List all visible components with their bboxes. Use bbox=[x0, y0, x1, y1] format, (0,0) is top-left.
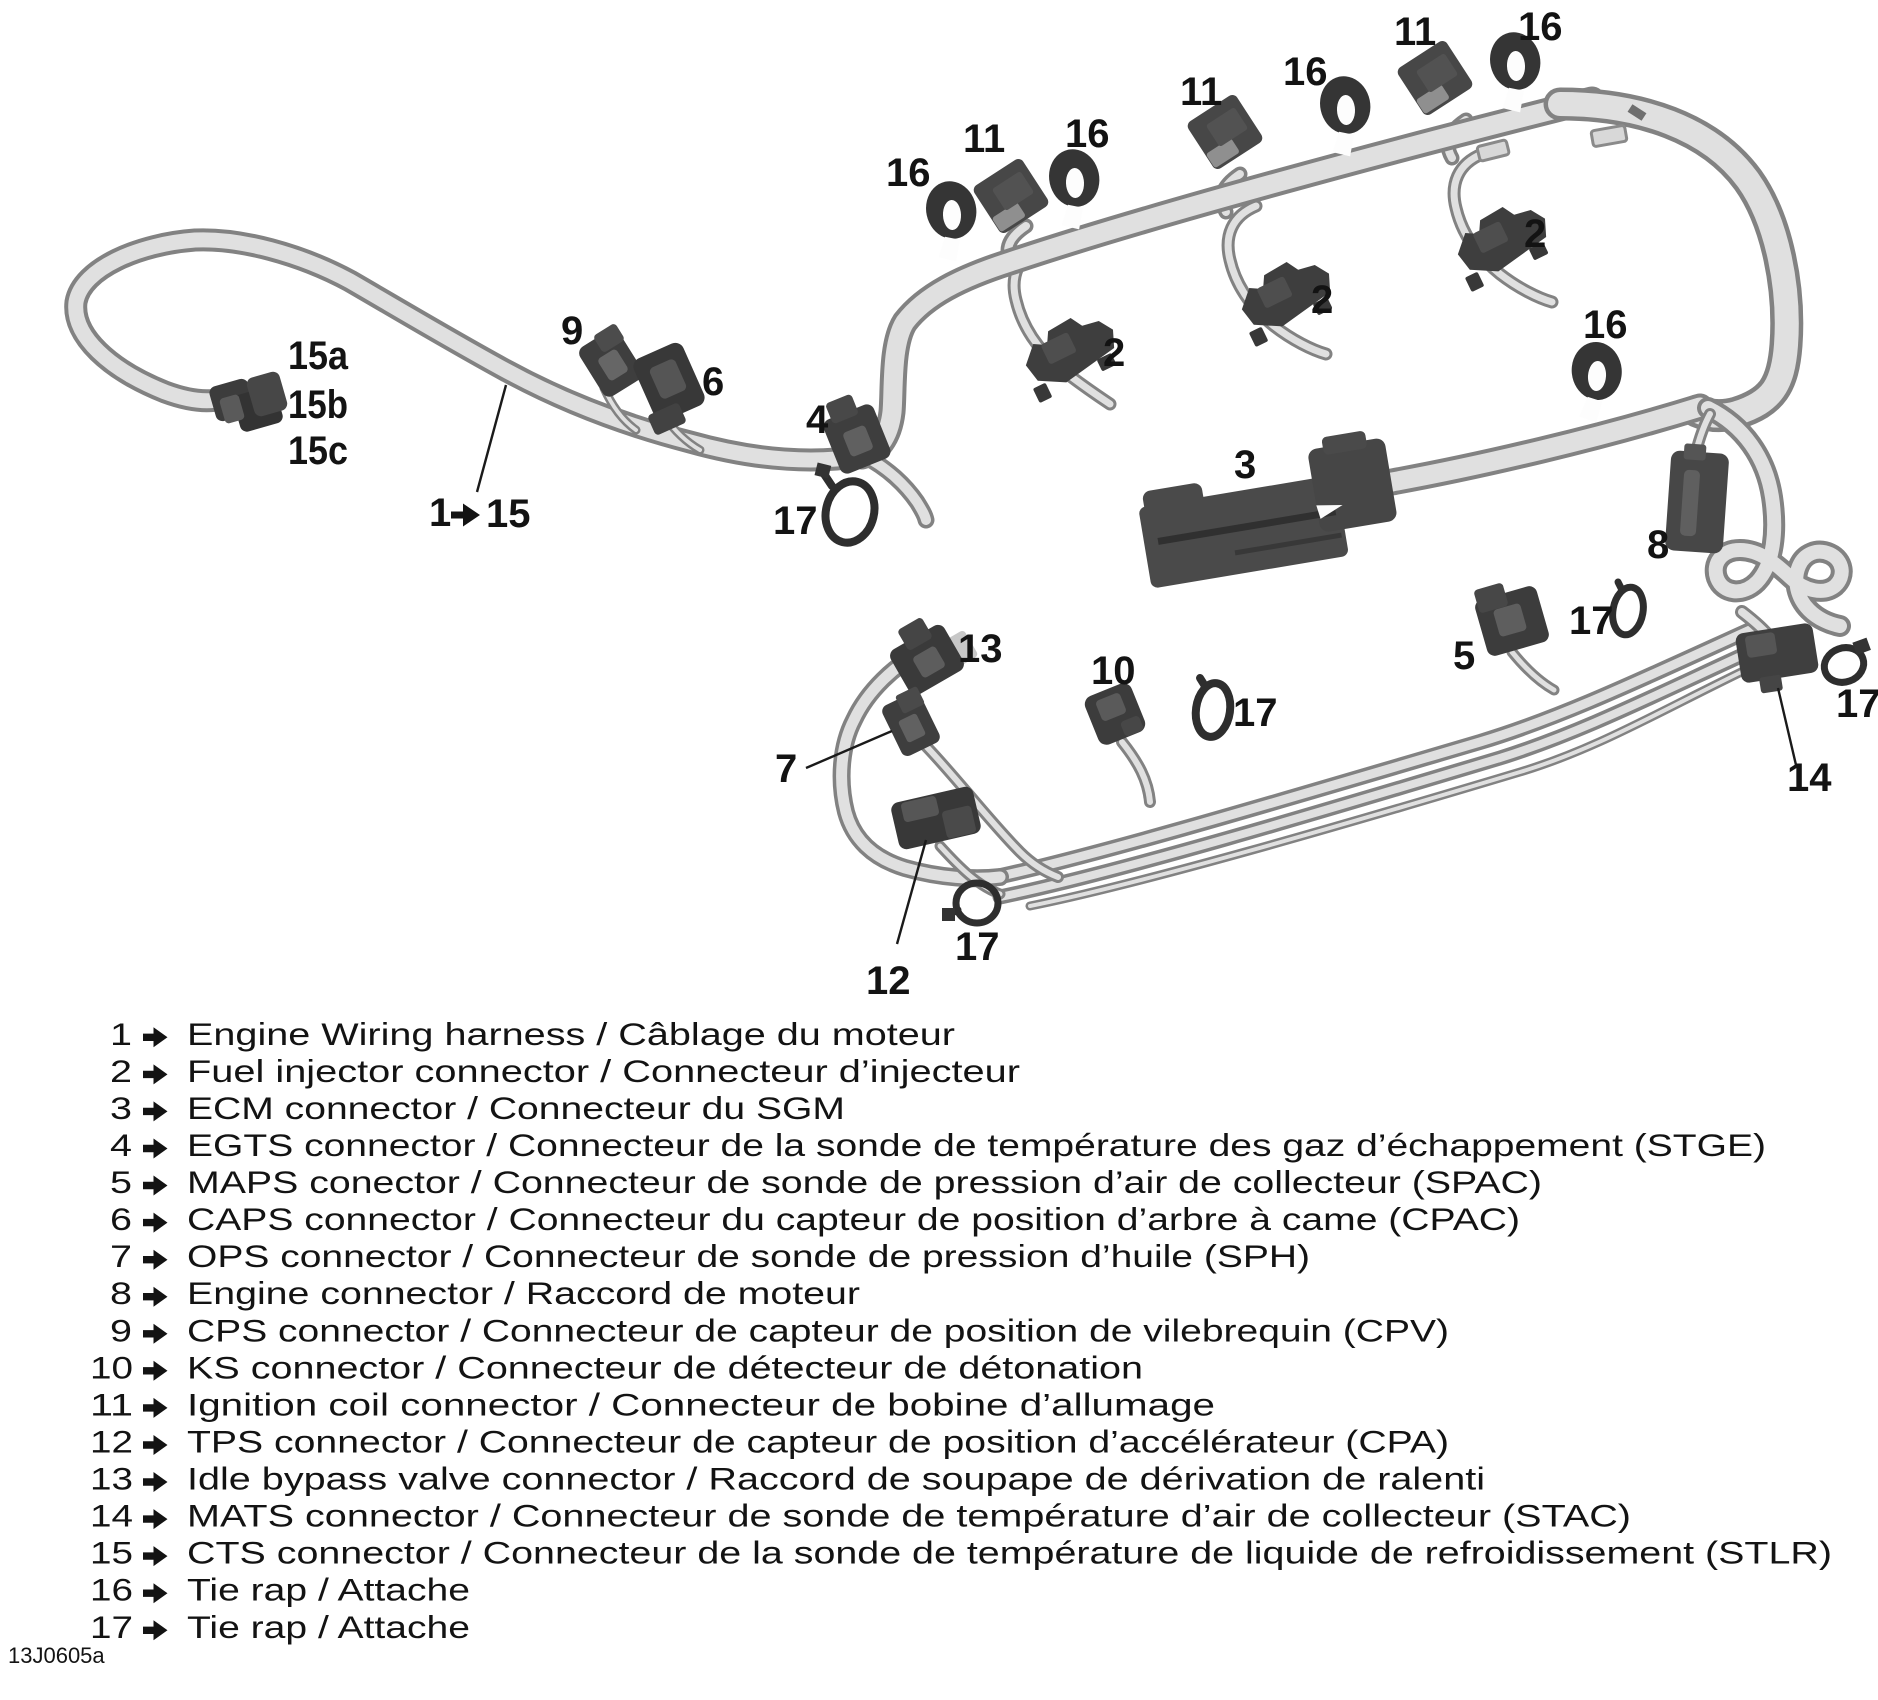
svg-text:5: 5 bbox=[110, 1164, 132, 1200]
svg-text:OPS connector / Connecteur de: OPS connector / Connecteur de sonde de p… bbox=[187, 1238, 1310, 1274]
svg-text:13: 13 bbox=[90, 1461, 133, 1497]
svg-text:15: 15 bbox=[486, 492, 531, 536]
svg-text:16: 16 bbox=[90, 1572, 133, 1608]
svg-text:11: 11 bbox=[90, 1386, 133, 1422]
svg-text:Tie rap / Attache: Tie rap / Attache bbox=[187, 1572, 470, 1608]
svg-text:16: 16 bbox=[1583, 303, 1628, 347]
svg-text:TPS connector / Connecteur de: TPS connector / Connecteur de capteur de… bbox=[187, 1424, 1449, 1460]
svg-text:10: 10 bbox=[1091, 649, 1136, 693]
svg-text:15b: 15b bbox=[288, 383, 348, 427]
svg-text:17: 17 bbox=[90, 1609, 133, 1645]
svg-text:CPS connector / Connecteur de: CPS connector / Connecteur de capteur de… bbox=[187, 1312, 1449, 1348]
svg-text:MATS connector / Connecteur de: MATS connector / Connecteur de sonde de … bbox=[187, 1498, 1631, 1534]
svg-text:16: 16 bbox=[1065, 112, 1110, 156]
svg-text:3: 3 bbox=[1234, 443, 1256, 487]
svg-text:8: 8 bbox=[110, 1275, 132, 1311]
svg-text:15: 15 bbox=[90, 1535, 133, 1571]
svg-text:11: 11 bbox=[963, 117, 1005, 161]
svg-text:Fuel injector connector / Conn: Fuel injector connector / Connecteur d’i… bbox=[187, 1053, 1020, 1089]
svg-text:11: 11 bbox=[1394, 10, 1436, 54]
svg-text:17: 17 bbox=[773, 499, 818, 543]
svg-text:16: 16 bbox=[1518, 5, 1563, 49]
svg-text:Engine Wiring harness / Câblag: Engine Wiring harness / Câblage du moteu… bbox=[187, 1016, 955, 1052]
svg-text:1: 1 bbox=[110, 1016, 132, 1052]
svg-text:16: 16 bbox=[886, 151, 931, 195]
svg-text:17: 17 bbox=[1836, 682, 1878, 726]
svg-text:14: 14 bbox=[90, 1498, 133, 1534]
svg-text:6: 6 bbox=[702, 360, 724, 404]
svg-text:4: 4 bbox=[806, 398, 829, 442]
svg-text:2: 2 bbox=[1103, 331, 1125, 375]
svg-text:17: 17 bbox=[955, 925, 1000, 969]
svg-text:1: 1 bbox=[429, 491, 451, 535]
svg-text:2: 2 bbox=[110, 1053, 132, 1089]
svg-text:7: 7 bbox=[110, 1238, 132, 1274]
svg-text:Tie rap / Attache: Tie rap / Attache bbox=[187, 1609, 470, 1645]
svg-text:9: 9 bbox=[561, 309, 583, 353]
svg-text:EGTS connector / Connecteur de: EGTS connector / Connecteur de la sonde … bbox=[187, 1127, 1766, 1163]
svg-text:12: 12 bbox=[90, 1424, 133, 1460]
svg-text:14: 14 bbox=[1787, 756, 1832, 800]
svg-text:9: 9 bbox=[110, 1312, 132, 1348]
svg-text:17: 17 bbox=[1569, 599, 1614, 643]
svg-text:KS connector / Connecteur de d: KS connector / Connecteur de détecteur d… bbox=[187, 1349, 1143, 1385]
svg-text:13J0605a: 13J0605a bbox=[8, 1643, 105, 1668]
svg-text:7: 7 bbox=[775, 747, 797, 791]
svg-text:MAPS conector / Connecteur de: MAPS conector / Connecteur de sonde de p… bbox=[187, 1164, 1542, 1200]
svg-text:CTS connector / Connecteur de: CTS connector / Connecteur de la sonde d… bbox=[187, 1535, 1832, 1571]
svg-text:Idle bypass valve connector /: Idle bypass valve connector / Raccord de… bbox=[187, 1461, 1485, 1497]
svg-text:11: 11 bbox=[1180, 70, 1222, 114]
svg-text:6: 6 bbox=[110, 1201, 132, 1237]
svg-text:4: 4 bbox=[110, 1127, 132, 1163]
svg-text:12: 12 bbox=[866, 959, 911, 1003]
svg-text:10: 10 bbox=[90, 1349, 133, 1385]
svg-text:13: 13 bbox=[958, 627, 1003, 671]
svg-text:Ignition coil connector / Conn: Ignition coil connector / Connecteur de … bbox=[187, 1386, 1215, 1422]
svg-text:ECM connector / Connecteur du: ECM connector / Connecteur du SGM bbox=[187, 1090, 845, 1126]
svg-text:2: 2 bbox=[1524, 212, 1546, 256]
svg-text:Engine connector / Raccord de: Engine connector / Raccord de moteur bbox=[187, 1275, 860, 1311]
svg-text:16: 16 bbox=[1283, 50, 1328, 94]
svg-text:5: 5 bbox=[1453, 634, 1475, 678]
svg-text:15c: 15c bbox=[288, 429, 348, 473]
svg-text:3: 3 bbox=[110, 1090, 132, 1126]
svg-text:2: 2 bbox=[1311, 278, 1333, 322]
svg-text:CAPS connector / Connecteur du: CAPS connector / Connecteur du capteur d… bbox=[187, 1201, 1520, 1237]
svg-text:8: 8 bbox=[1647, 523, 1669, 567]
svg-text:17: 17 bbox=[1233, 691, 1278, 735]
svg-text:15a: 15a bbox=[288, 334, 349, 378]
